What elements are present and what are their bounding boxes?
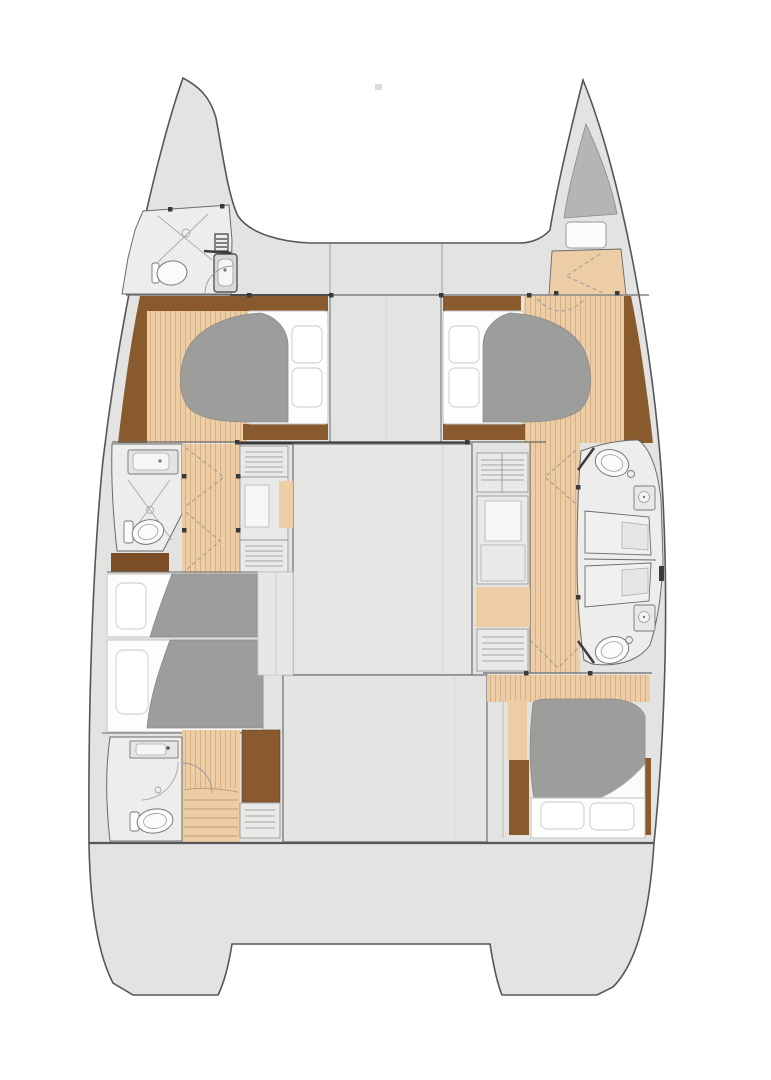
pillow: [116, 650, 148, 714]
wood-counter: [476, 587, 530, 627]
port-bow-bathroom: [122, 205, 237, 294]
drawer-unit: [477, 629, 528, 671]
footboard: [243, 424, 328, 440]
wood-floor: [487, 675, 650, 702]
drawer-unit: [477, 453, 528, 492]
pillow: [449, 326, 479, 363]
starboard-bathroom-column: [577, 440, 664, 668]
sink-icon: [634, 605, 655, 631]
saloon-block-forward: [293, 444, 472, 675]
pillow: [116, 583, 146, 629]
wood-floor: [530, 443, 580, 673]
shower-stall: [585, 563, 651, 607]
pillow: [292, 368, 322, 407]
locker-dark: [111, 553, 169, 572]
port-cabinets: [240, 446, 293, 572]
catamaran-floorplan: [0, 0, 771, 1080]
sink-icon: [128, 450, 178, 474]
wood-floor: [182, 788, 240, 842]
tall-locker-dark: [242, 730, 280, 802]
drawer-unit: [240, 803, 280, 838]
headboard: [443, 296, 521, 311]
starboard-aft-cabin: [487, 675, 651, 838]
wood-floor: [508, 700, 527, 760]
port-corridor: [182, 443, 240, 573]
port-forward-cabin: [118, 296, 330, 443]
pillow: [292, 326, 322, 363]
starboard-forward-cabin: [441, 296, 653, 443]
trampoline-speck: [375, 84, 382, 90]
starboard-cabinets: [476, 453, 530, 671]
pillow: [449, 368, 479, 407]
floorplan-canvas: [0, 0, 771, 1080]
sink-icon: [214, 254, 237, 292]
drawer-unit: [240, 446, 288, 477]
bow-floor: [549, 249, 626, 295]
wood-floor: [182, 444, 240, 573]
shower-stall: [585, 511, 651, 555]
pillow: [541, 802, 584, 829]
port-single-bed-forward: [107, 574, 257, 637]
sink-icon: [634, 486, 655, 510]
frame-dark: [509, 760, 529, 835]
headboard: [143, 296, 328, 311]
port-single-bed-aft: [107, 640, 263, 732]
port-aft-area: [107, 730, 280, 842]
hull-door-handle: [659, 566, 664, 581]
drawer-unit: [240, 540, 288, 572]
vanity-desk: [477, 496, 528, 584]
port-inboard-panel: [258, 572, 293, 675]
footboard: [443, 424, 525, 440]
wood-floor-striped: [182, 730, 240, 788]
cabinet-unit: [240, 477, 293, 540]
pillow: [590, 803, 634, 830]
saloon-block-aft: [283, 675, 487, 842]
bow-hatch: [566, 222, 606, 248]
sink-icon: [130, 741, 178, 758]
